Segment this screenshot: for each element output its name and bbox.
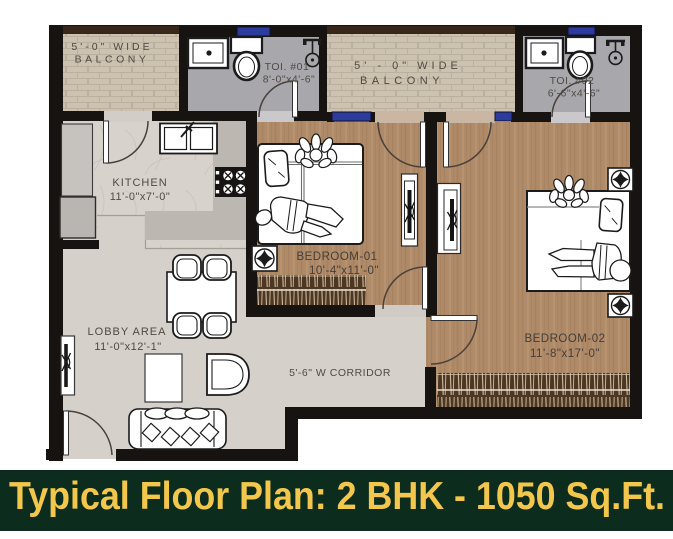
svg-text:10'-4"x11'-0": 10'-4"x11'-0" [309,265,379,277]
svg-text:TOI. #02: TOI. #02 [550,75,595,87]
svg-text:Typical Floor Plan: 2 BHK - 1: Typical Floor Plan: 2 BHK - 1050 Sq.Ft. [9,475,665,518]
svg-text:BALCONY: BALCONY [75,54,150,66]
svg-text:11'-0"x12'-1": 11'-0"x12'-1" [94,341,161,353]
svg-text:11'-8"x17'-0": 11'-8"x17'-0" [530,348,600,360]
svg-text:6'-6"x4'-6": 6'-6"x4'-6" [548,88,601,100]
svg-text:8'-0"x4'-6": 8'-0"x4'-6" [263,74,316,86]
svg-text:KITCHEN: KITCHEN [112,177,167,189]
svg-text:11'-0"x7'-0": 11'-0"x7'-0" [110,191,171,203]
svg-text:BALCONY: BALCONY [360,75,444,87]
svg-text:5'-6" W CORRIDOR: 5'-6" W CORRIDOR [289,367,391,379]
svg-text:5'-0" WIDE: 5'-0" WIDE [71,41,152,53]
svg-text:5' - 0" WIDE: 5' - 0" WIDE [354,60,462,72]
svg-text:BEDROOM-02: BEDROOM-02 [524,333,605,345]
svg-text:BEDROOM-01: BEDROOM-01 [296,251,377,263]
svg-text:LOBBY AREA: LOBBY AREA [88,326,167,338]
svg-text:TOI. #01: TOI. #01 [265,61,310,73]
